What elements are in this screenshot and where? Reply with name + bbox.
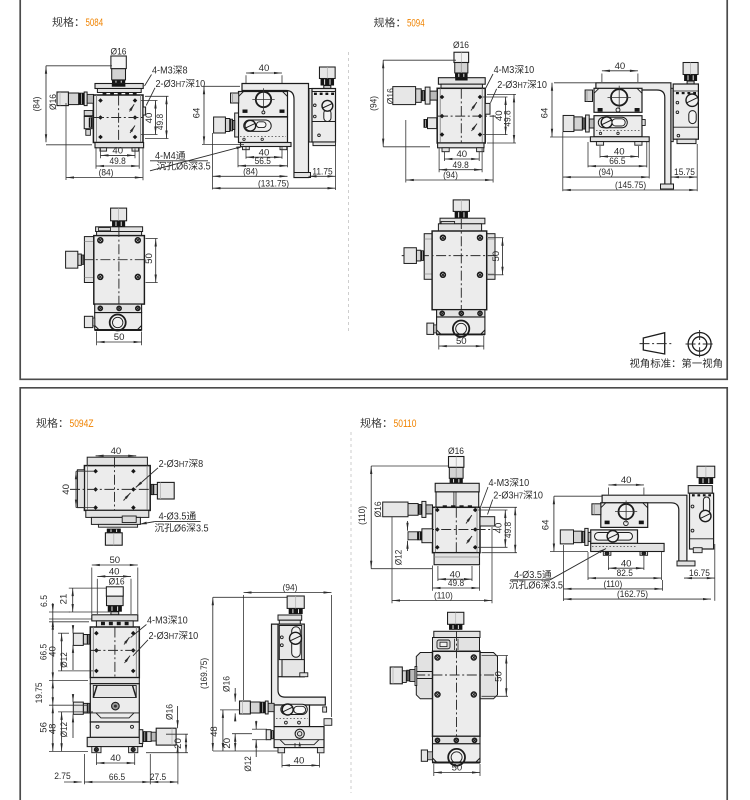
svg-text:49.8: 49.8 xyxy=(448,578,464,589)
svg-text:82.5: 82.5 xyxy=(617,568,633,579)
svg-text:40: 40 xyxy=(621,475,632,486)
svg-text:40: 40 xyxy=(61,484,72,495)
svg-text:5084: 5084 xyxy=(86,17,104,29)
svg-text:10: 10 xyxy=(524,65,535,76)
svg-text:40: 40 xyxy=(294,756,305,767)
svg-text:3.5: 3.5 xyxy=(550,580,563,591)
svg-text:6.5: 6.5 xyxy=(39,595,50,607)
svg-text:40: 40 xyxy=(615,61,626,72)
svg-text:20: 20 xyxy=(173,738,184,749)
svg-text:(131.75): (131.75) xyxy=(258,178,289,189)
svg-text:66.5: 66.5 xyxy=(109,772,125,783)
svg-text:(110): (110) xyxy=(357,506,368,525)
svg-text:49.8: 49.8 xyxy=(109,156,125,167)
svg-text:49.8: 49.8 xyxy=(155,114,166,130)
svg-text:H7: H7 xyxy=(514,492,524,501)
svg-text:3.5: 3.5 xyxy=(196,523,209,534)
svg-text:4-Ø3.5: 4-Ø3.5 xyxy=(159,512,187,523)
svg-text:49.8: 49.8 xyxy=(503,522,514,538)
svg-text:64: 64 xyxy=(540,107,551,118)
svg-text:Ø16: Ø16 xyxy=(109,576,125,587)
svg-text:(84): (84) xyxy=(32,97,43,112)
svg-text:H7: H7 xyxy=(169,632,179,641)
svg-text:40: 40 xyxy=(110,753,121,764)
svg-text:Ø16: Ø16 xyxy=(164,704,175,720)
svg-text:10: 10 xyxy=(537,80,548,91)
svg-text:Ø12: Ø12 xyxy=(243,756,254,772)
svg-text:8: 8 xyxy=(198,459,203,470)
svg-text:20: 20 xyxy=(222,738,233,749)
svg-text:50110: 50110 xyxy=(394,418,417,430)
svg-text:40: 40 xyxy=(111,446,122,457)
svg-text:2-Ø3: 2-Ø3 xyxy=(156,79,177,90)
svg-text:Ø12: Ø12 xyxy=(393,550,404,566)
svg-text:2-Ø3: 2-Ø3 xyxy=(493,491,514,502)
svg-text:50: 50 xyxy=(144,253,155,264)
svg-text:49.8: 49.8 xyxy=(503,110,514,126)
svg-text:10: 10 xyxy=(519,478,530,489)
svg-text:4-M3: 4-M3 xyxy=(152,66,173,77)
svg-text:4-M4: 4-M4 xyxy=(155,151,176,162)
svg-text:10: 10 xyxy=(178,616,189,627)
svg-text:50: 50 xyxy=(491,251,502,262)
svg-text:27.5: 27.5 xyxy=(150,772,166,783)
svg-text:5094Z: 5094Z xyxy=(70,418,94,430)
svg-text:3.5: 3.5 xyxy=(198,162,211,173)
svg-text:(94): (94) xyxy=(369,96,380,111)
svg-text:10: 10 xyxy=(188,631,199,642)
svg-text:(94): (94) xyxy=(283,583,298,594)
svg-text:Ø6: Ø6 xyxy=(174,523,187,534)
svg-text:2-Ø3: 2-Ø3 xyxy=(497,80,518,91)
svg-text:Ø16: Ø16 xyxy=(222,676,233,692)
svg-text:(162.75): (162.75) xyxy=(617,589,648,600)
svg-text:2.75: 2.75 xyxy=(54,771,71,782)
svg-text:66.5: 66.5 xyxy=(38,644,49,660)
svg-text:(110): (110) xyxy=(434,591,453,602)
svg-text:40: 40 xyxy=(112,146,123,157)
svg-text:10: 10 xyxy=(533,491,544,502)
svg-text:8: 8 xyxy=(183,66,188,77)
svg-text:50: 50 xyxy=(456,336,467,347)
svg-text:50: 50 xyxy=(109,555,120,566)
svg-text:H7: H7 xyxy=(179,460,189,469)
svg-text:66.5: 66.5 xyxy=(609,156,625,167)
svg-text:H7: H7 xyxy=(176,80,186,89)
svg-text:(169.75): (169.75) xyxy=(199,658,210,689)
svg-text:2-Ø3: 2-Ø3 xyxy=(149,631,170,642)
svg-text:19.75: 19.75 xyxy=(34,682,45,703)
svg-text:(84): (84) xyxy=(99,168,114,179)
svg-text:Ø6: Ø6 xyxy=(528,580,541,591)
svg-text:(94): (94) xyxy=(443,170,458,181)
svg-text:Ø16: Ø16 xyxy=(453,40,469,51)
svg-text:56.5: 56.5 xyxy=(255,156,271,167)
svg-text:16.75: 16.75 xyxy=(689,568,710,579)
svg-text:15.75: 15.75 xyxy=(674,167,695,178)
svg-text:40: 40 xyxy=(456,149,467,160)
svg-text:Ø16: Ø16 xyxy=(448,446,464,457)
svg-text:21: 21 xyxy=(59,594,70,605)
svg-text:40: 40 xyxy=(259,63,270,74)
svg-text:64: 64 xyxy=(541,519,552,530)
svg-text:Ø12: Ø12 xyxy=(59,722,70,738)
svg-text:5094: 5094 xyxy=(407,18,425,30)
svg-text:11.75: 11.75 xyxy=(312,166,332,177)
svg-text:4-M3: 4-M3 xyxy=(489,478,510,489)
svg-text:(94): (94) xyxy=(599,167,614,178)
svg-text:50: 50 xyxy=(114,332,125,343)
svg-text:4-M3: 4-M3 xyxy=(147,616,168,627)
svg-text:64: 64 xyxy=(192,107,203,118)
svg-text:H7: H7 xyxy=(517,81,527,90)
svg-text:40: 40 xyxy=(144,113,155,124)
svg-text:48: 48 xyxy=(48,724,59,735)
svg-text:48: 48 xyxy=(209,726,220,737)
svg-text:50: 50 xyxy=(452,763,463,774)
svg-text:50: 50 xyxy=(494,671,505,682)
svg-text:(84): (84) xyxy=(243,166,258,177)
svg-text:(145.75): (145.75) xyxy=(615,180,646,191)
svg-text:4-M3: 4-M3 xyxy=(494,65,515,76)
svg-text:2-Ø3: 2-Ø3 xyxy=(159,459,180,470)
